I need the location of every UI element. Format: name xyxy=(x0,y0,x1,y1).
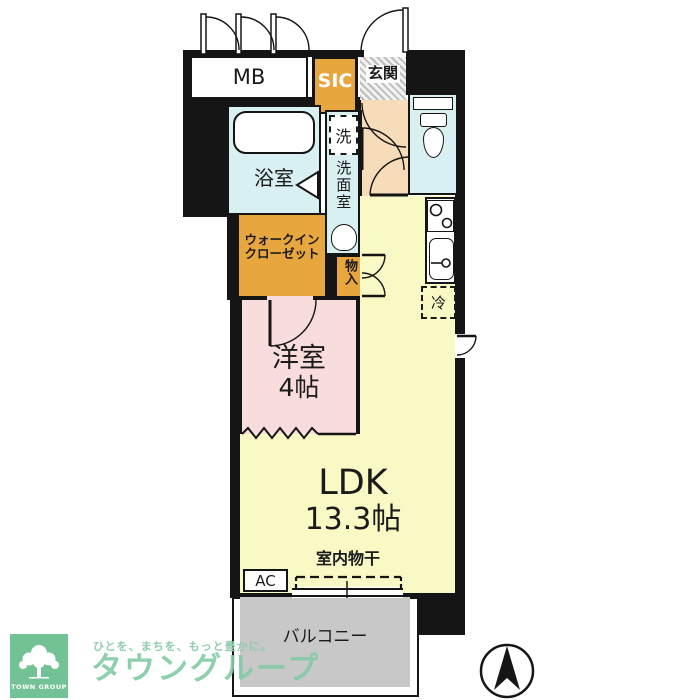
ldk-name: LDK xyxy=(305,463,402,503)
brand-name: タウングループ xyxy=(91,652,320,688)
wall-top-right-block xyxy=(406,50,465,95)
hall xyxy=(358,100,408,196)
western-room-name: 洋室 xyxy=(272,343,326,374)
town-group-logo: TOWN GROUP xyxy=(10,634,68,698)
toilet-shelf xyxy=(413,97,453,110)
washroom-sink-icon xyxy=(331,224,357,251)
floorplan-page: { "floorplan": { "rooms": { "mb": "MB", … xyxy=(0,0,700,700)
ac-label: AC xyxy=(255,572,275,590)
western-room-label: 洋室 4帖 xyxy=(240,333,358,413)
sic-label: SIC xyxy=(312,57,358,107)
refrigerator-icon: 冷 xyxy=(421,286,456,319)
kitchen-sink-icon xyxy=(429,238,454,280)
mb-door-icons xyxy=(201,14,309,54)
refrigerator-label: 冷 xyxy=(431,292,446,313)
wall-left-west-room xyxy=(230,296,240,438)
walk-in-closet-label: ウォークイン クローゼット xyxy=(237,226,327,268)
toilet-tank-icon xyxy=(420,113,447,127)
wall-left-bath-block xyxy=(183,100,227,217)
bathtub-icon xyxy=(233,111,315,154)
entrance-door-icon xyxy=(361,8,408,52)
wic-label-line1: ウォークイン xyxy=(244,233,319,247)
wic-label-line2: クローゼット xyxy=(244,247,319,261)
washing-machine-label: 洗 xyxy=(335,123,351,147)
meter-box-label: MB xyxy=(190,56,308,99)
western-room-size: 4帖 xyxy=(272,374,326,403)
wall-left-ldk xyxy=(230,434,240,594)
stove-icon xyxy=(427,200,454,232)
ldk-label: LDK 13.3帖 xyxy=(273,462,433,538)
ac-box: AC xyxy=(243,569,288,592)
entrance-label-text: 玄関 xyxy=(366,65,400,82)
washroom-label: 洗面室 xyxy=(334,160,351,211)
indoor-drying-label: 室内物干 xyxy=(290,549,406,569)
wall-left-wic xyxy=(227,211,237,300)
compass-icon xyxy=(481,645,533,697)
town-group-logo-text: TOWN GROUP xyxy=(10,684,68,691)
washing-machine-icon: 洗 xyxy=(329,115,358,155)
bathroom-label: 浴室 xyxy=(227,158,321,198)
entrance-label: 玄関 xyxy=(360,62,406,86)
ldk-size: 13.3帖 xyxy=(305,503,402,538)
storage-label: 物入 xyxy=(341,259,356,285)
